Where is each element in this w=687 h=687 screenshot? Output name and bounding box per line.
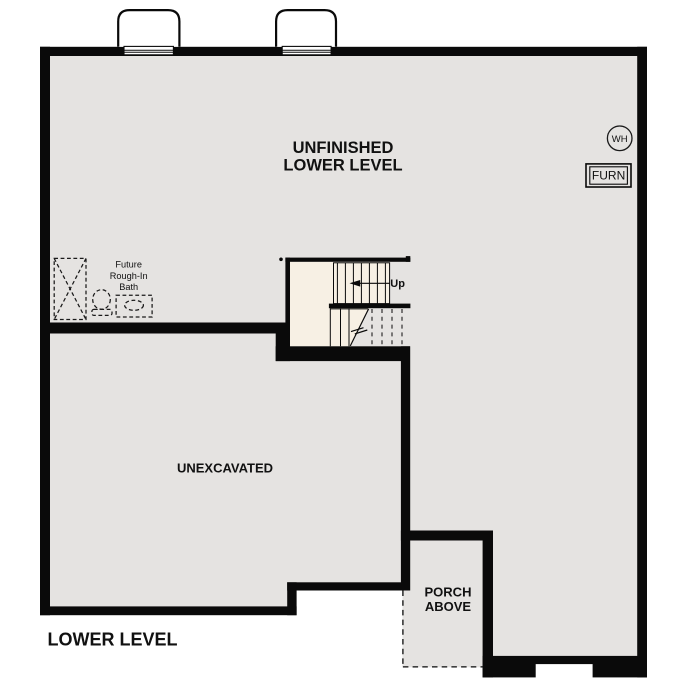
svg-text:UNEXCAVATED: UNEXCAVATED <box>177 461 273 476</box>
svg-text:LOWER LEVEL: LOWER LEVEL <box>283 157 402 175</box>
svg-text:Rough-In: Rough-In <box>110 271 148 281</box>
svg-text:LOWER LEVEL: LOWER LEVEL <box>48 629 178 649</box>
svg-text:FURN: FURN <box>592 169 625 183</box>
svg-text:Bath: Bath <box>119 282 138 292</box>
svg-text:Up: Up <box>390 278 405 290</box>
svg-text:ABOVE: ABOVE <box>425 599 472 614</box>
svg-text:UNFINISHED: UNFINISHED <box>293 139 394 157</box>
svg-text:Future: Future <box>115 259 142 269</box>
svg-text:PORCH: PORCH <box>425 584 472 599</box>
svg-text:WH: WH <box>612 134 628 145</box>
